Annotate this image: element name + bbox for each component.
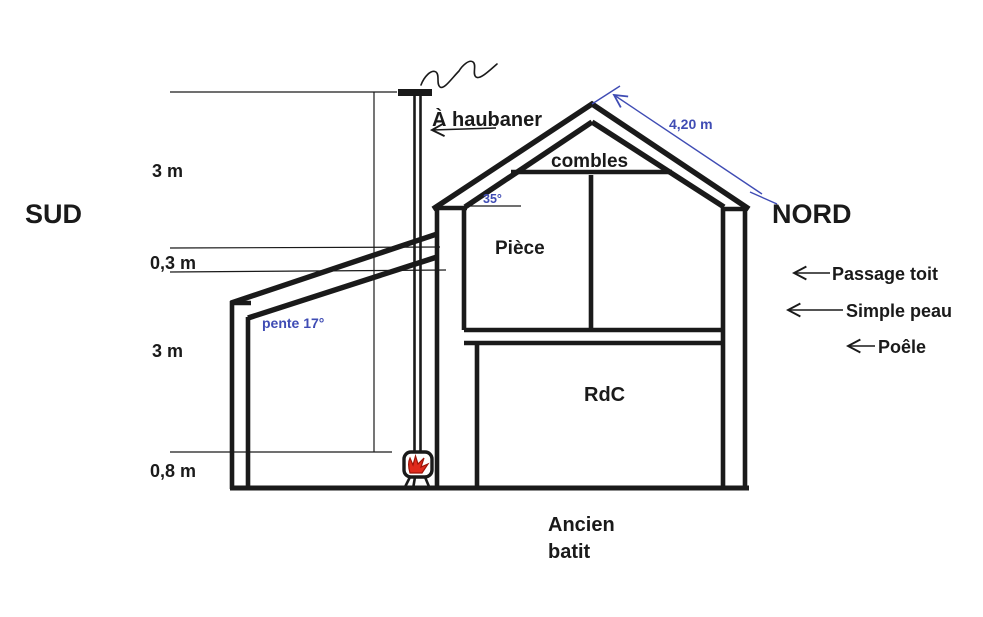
- passage-toit-label: Passage toit: [832, 264, 938, 284]
- upper-room-label: Pièce: [495, 238, 545, 259]
- old-building-label-line1: Ancien: [548, 514, 615, 536]
- lower-height-label: 3 m: [152, 341, 183, 361]
- roof-length-dimension: 4,20 m: [592, 86, 777, 204]
- attic-label: combles: [551, 151, 628, 172]
- roof-length-label: 4,20 m: [669, 116, 713, 132]
- stove-height-label: 0,8 m: [150, 461, 196, 481]
- lean-to-structure: [230, 234, 437, 489]
- upper-height-label: 3 m: [152, 161, 183, 181]
- guide-offset-bottom-line: [170, 270, 446, 272]
- roof-offset-label: 0,3 m: [150, 253, 196, 273]
- dimension-labels: 3 m 0,3 m 3 m 0,8 m: [150, 161, 196, 481]
- chimney-cap: [398, 89, 432, 96]
- simple-peau-label: Simple peau: [846, 301, 952, 321]
- house-section-sketch: 3 m 0,3 m 3 m 0,8 m SUD NORD: [0, 0, 983, 617]
- right-annotations: Passage toit Simple peau Poêle: [788, 264, 952, 357]
- orientation-south-label: SUD: [25, 199, 82, 229]
- old-building-label-line2: batit: [548, 541, 591, 563]
- poele-label: Poêle: [878, 337, 926, 357]
- ground-floor-label: RdC: [584, 384, 625, 406]
- roof-dimension-arrow: [614, 95, 762, 194]
- dimension-guide-lines: [170, 92, 521, 452]
- orientation-north-label: NORD: [772, 199, 852, 229]
- roof-dimension-tick-top: [592, 86, 620, 104]
- wood-stove: [404, 452, 432, 489]
- smoke-icon: [421, 61, 497, 87]
- roof-dimension-tick-bottom: [750, 192, 777, 204]
- leanto-slope-label: pente 17°: [262, 315, 324, 331]
- guy-wire-annotation: À haubaner: [432, 108, 542, 131]
- house-section-diagram: 3 m 0,3 m 3 m 0,8 m SUD NORD: [0, 0, 983, 617]
- interior-labels: combles Pièce RdC Ancien batit: [495, 151, 628, 563]
- roof-angle-label: 35°: [483, 192, 502, 206]
